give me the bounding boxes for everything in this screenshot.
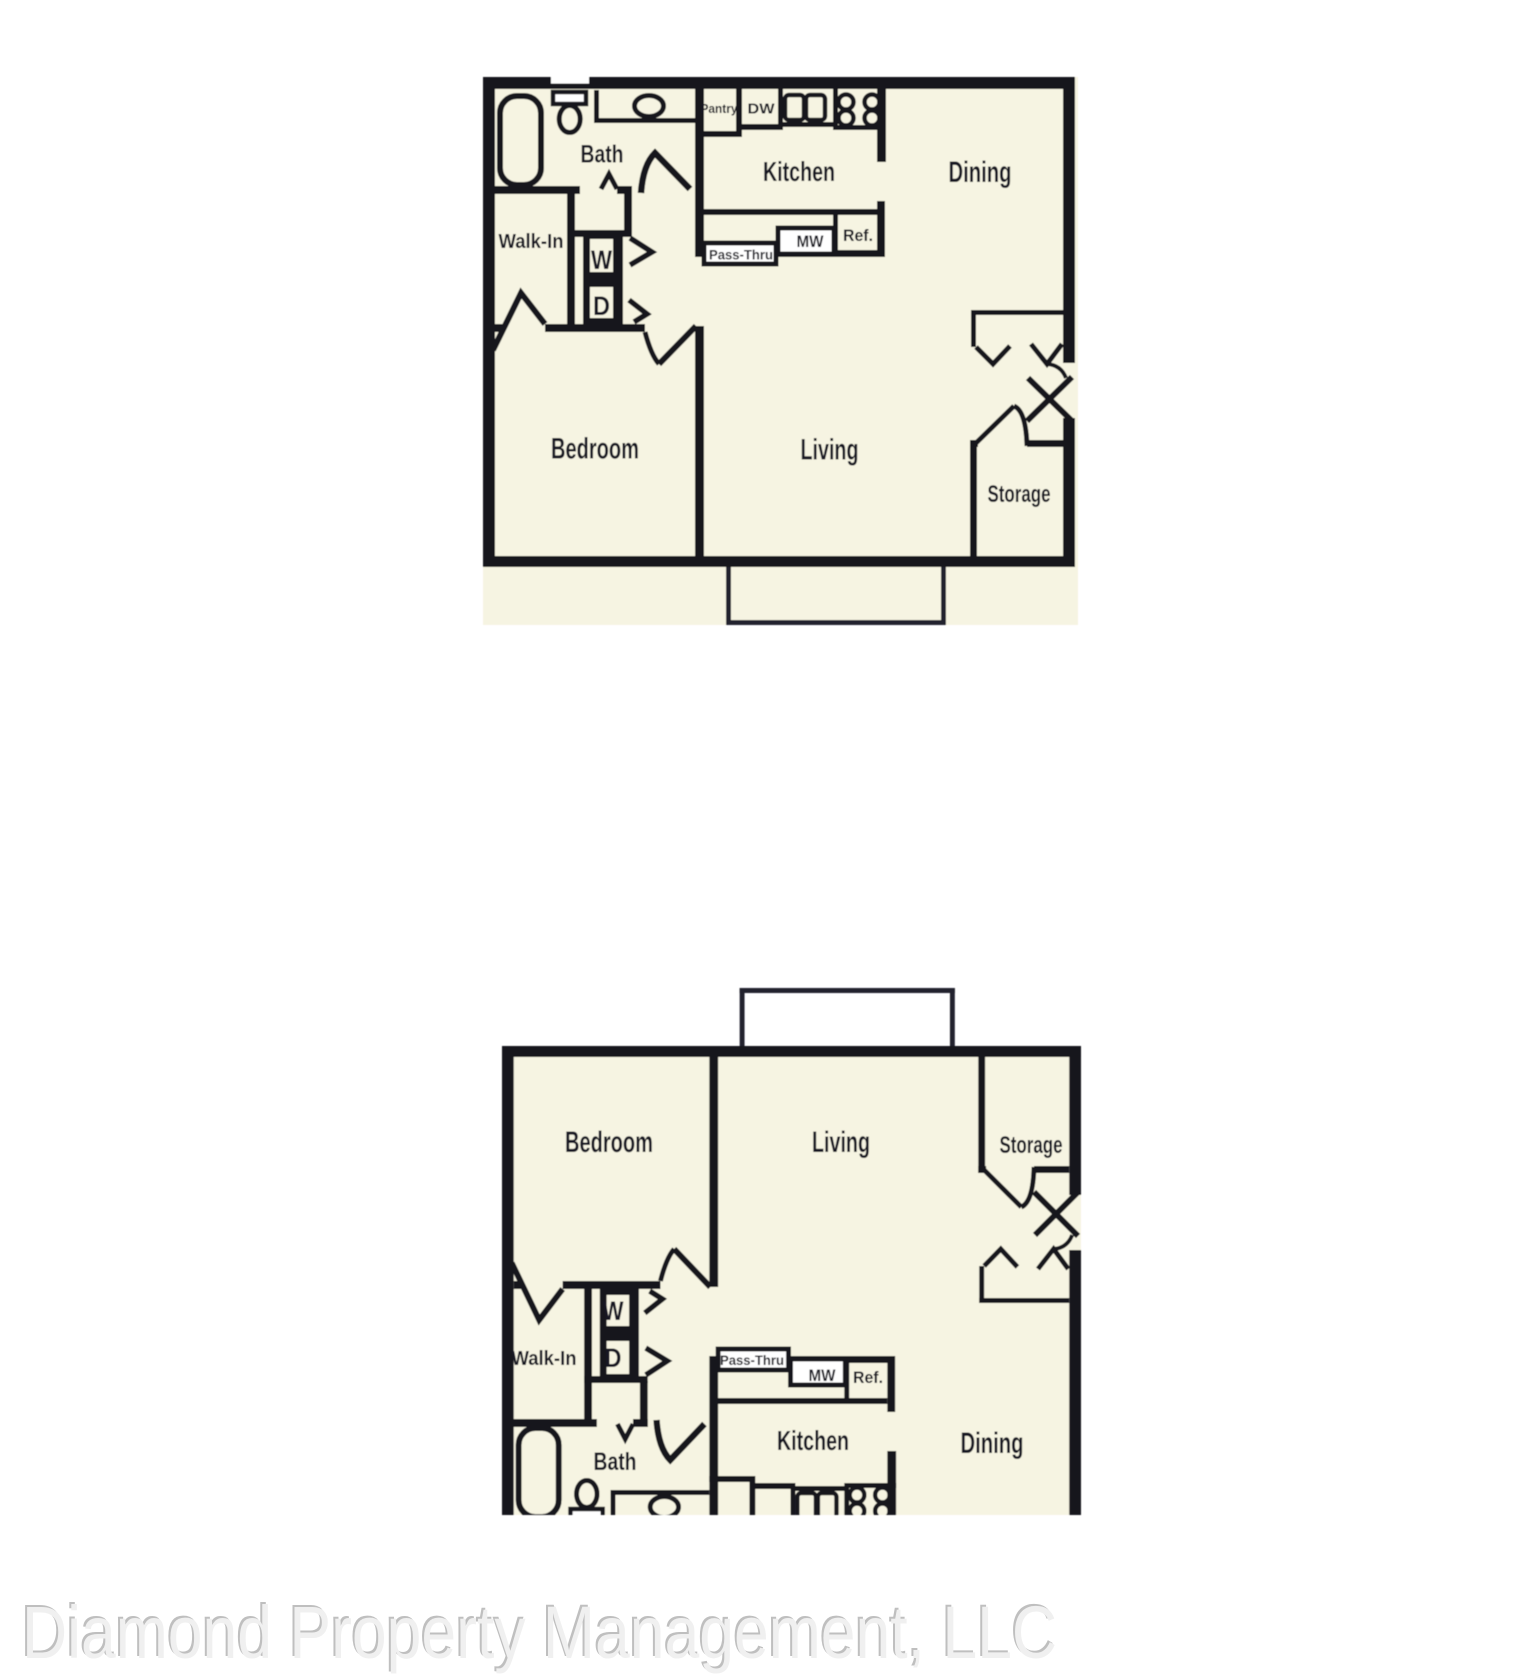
svg-text:Kitchen: Kitchen <box>763 156 835 187</box>
svg-text:Ref.: Ref. <box>843 227 873 245</box>
svg-text:D: D <box>605 1343 622 1373</box>
svg-text:Living: Living <box>812 1126 870 1159</box>
svg-text:D: D <box>593 291 610 321</box>
svg-text:Dining: Dining <box>961 1427 1024 1460</box>
svg-text:Pass-Thru: Pass-Thru <box>709 247 773 263</box>
svg-text:Living: Living <box>801 434 859 467</box>
svg-text:MW: MW <box>797 233 824 251</box>
svg-text:Walk-In: Walk-In <box>512 1348 577 1370</box>
svg-text:Bedroom: Bedroom <box>565 1126 653 1159</box>
svg-text:Diamond Property Management, L: Diamond Property Management, LLC <box>22 1591 1057 1674</box>
svg-text:Dining: Dining <box>949 156 1012 189</box>
svg-text:W: W <box>603 1296 624 1326</box>
svg-text:Pantry: Pantry <box>701 101 739 116</box>
svg-text:DW: DW <box>748 101 776 118</box>
svg-text:Storage: Storage <box>988 481 1051 508</box>
svg-text:W: W <box>591 245 612 275</box>
svg-text:MW: MW <box>809 1367 836 1385</box>
svg-text:Bedroom: Bedroom <box>551 433 639 466</box>
svg-text:Bath: Bath <box>581 141 624 169</box>
svg-text:Kitchen: Kitchen <box>777 1425 849 1456</box>
svg-text:Walk-In: Walk-In <box>499 231 564 253</box>
svg-text:Ref.: Ref. <box>853 1369 883 1387</box>
svg-text:Pass-Thru: Pass-Thru <box>720 1352 784 1368</box>
svg-text:Bath: Bath <box>594 1448 637 1476</box>
svg-text:Storage: Storage <box>1000 1132 1063 1159</box>
